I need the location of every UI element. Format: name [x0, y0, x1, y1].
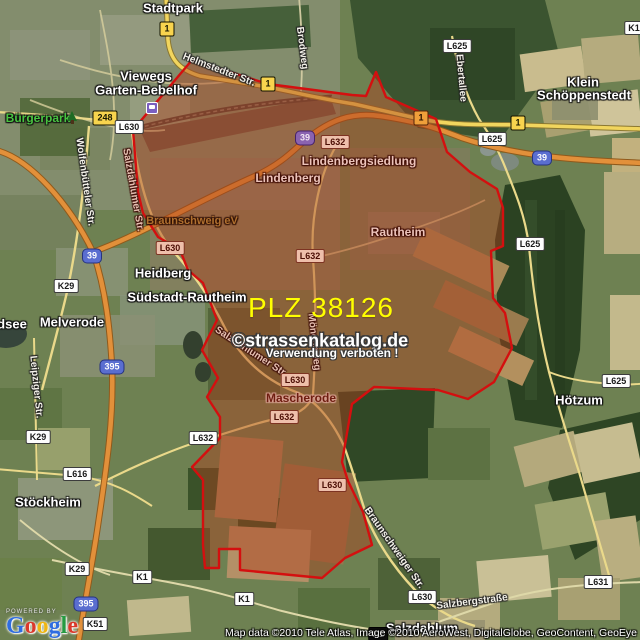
place-label-h-tzum: Hötzum	[555, 393, 603, 408]
street-label-wolfenb-tteler-str-: Wolfenbütteler Str.	[73, 137, 96, 226]
google-logo-letter: o	[37, 613, 49, 639]
street-label-braunschweiger-str-: Braunschweiger Str.	[362, 505, 426, 591]
route-shield-1: 1	[260, 77, 275, 92]
route-shield-l631: L631	[584, 575, 613, 589]
place-label-garten-bebelhof: Garten-Bebelhof	[95, 83, 197, 98]
station-icon	[146, 102, 158, 114]
street-label-salzbergstra-e: Salzbergstraße	[436, 592, 509, 612]
place-label-st-ckheim: Stöckheim	[15, 495, 81, 510]
place-label-s-dstadt-rautheim: Südstadt-Rautheim	[127, 290, 246, 305]
route-shield-k29: K29	[54, 279, 79, 293]
place-label-mascherode: Mascherode	[266, 391, 336, 405]
route-shield-l630: L630	[318, 478, 347, 492]
route-shield-l616: L616	[63, 467, 92, 481]
street-label-ebertallee: Ebertallee	[453, 54, 468, 103]
place-label-lindenbergsiedlung: Lindenbergsiedlung	[302, 154, 417, 168]
route-shield-l630: L630	[156, 241, 185, 255]
usage-warning: Verwendung verboten !	[266, 346, 399, 360]
place-label-viewegs: Viewegs	[120, 69, 172, 84]
place-label-sch-ppenstedt: Schöppenstedt	[537, 88, 631, 103]
place-label-braunschweig-ev: Braunschweig eV	[146, 215, 238, 227]
map-copyright: Map data ©2010 Tele Atlas, Image ©2010 A…	[225, 627, 637, 639]
route-shield-l630: L630	[115, 120, 144, 134]
route-shield-395: 395	[73, 597, 98, 612]
place-label-dsee: dsee	[0, 317, 27, 332]
route-shield-1: 1	[159, 22, 174, 37]
google-logo-letter: G	[6, 613, 25, 639]
tree-icon	[67, 111, 77, 121]
plz-watermark: PLZ 38126	[248, 292, 394, 324]
street-label-leipziger-str-: Leipziger Str.	[27, 355, 45, 419]
place-label-lindenberg: Lindenberg	[255, 171, 320, 185]
map-viewport[interactable]: 1111248393939395395L630L630L630L630L630L…	[0, 0, 640, 640]
google-logo-letter: g	[49, 613, 61, 639]
route-shield-k1: K1	[234, 592, 254, 606]
route-shield-l625: L625	[478, 132, 507, 146]
google-logo-letter: o	[25, 613, 37, 639]
route-shield-l632: L632	[189, 431, 218, 445]
route-shield-k1: K1	[132, 570, 152, 584]
place-label-heidberg: Heidberg	[135, 266, 191, 281]
route-shield-1: 1	[413, 111, 428, 126]
route-shield-1: 1	[510, 116, 525, 131]
place-label-melverode: Melverode	[40, 315, 104, 330]
route-shield-l625: L625	[443, 39, 472, 53]
route-shield-39: 39	[295, 131, 315, 146]
route-shield-l632: L632	[321, 135, 350, 149]
route-shield-l625: L625	[516, 237, 545, 251]
route-shield-k29: K29	[65, 562, 90, 576]
route-shield-k29: K29	[26, 430, 51, 444]
route-shield-39: 39	[82, 249, 102, 264]
google-logo-letter: e	[67, 613, 78, 639]
route-shield-l630: L630	[408, 590, 437, 604]
street-label-brodweg: Brodweg	[294, 26, 310, 70]
route-shield-l630: L630	[281, 373, 310, 387]
street-label-salzdahlumer-str-: Salzdahlumer Str.	[120, 148, 145, 233]
route-shield-39: 39	[532, 151, 552, 166]
route-shield-k1: K1	[624, 21, 640, 35]
place-label-b-rgerpark: Bürgerpark	[6, 111, 71, 125]
route-shield-l632: L632	[296, 249, 325, 263]
route-shield-k51: K51	[83, 617, 108, 631]
route-shield-395: 395	[99, 360, 124, 375]
route-shield-l625: L625	[602, 374, 631, 388]
place-label-rautheim: Rautheim	[371, 225, 426, 239]
route-shield-l632: L632	[270, 410, 299, 424]
place-label-stadtpark: Stadtpark	[143, 1, 203, 16]
google-logo[interactable]: Google	[6, 614, 78, 638]
